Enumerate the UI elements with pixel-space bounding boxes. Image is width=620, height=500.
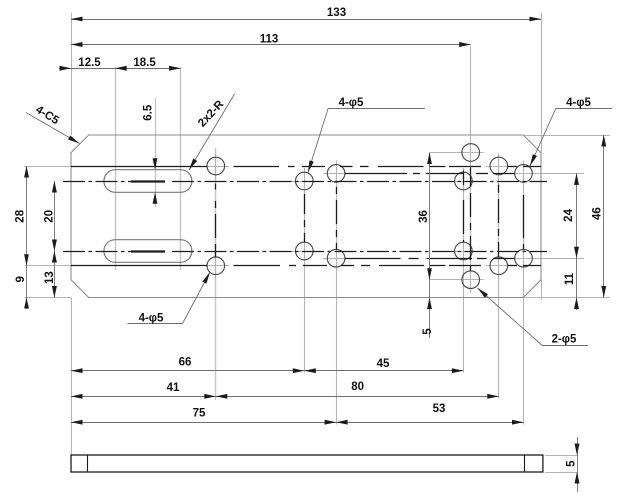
svg-text:133: 133 [327, 7, 346, 19]
svg-text:75: 75 [193, 408, 206, 420]
svg-text:12.5: 12.5 [78, 57, 101, 69]
svg-text:4-φ5: 4-φ5 [339, 97, 364, 109]
svg-text:2-φ5: 2-φ5 [552, 334, 577, 346]
svg-text:80: 80 [351, 381, 364, 393]
svg-text:24: 24 [563, 208, 575, 221]
svg-text:5: 5 [422, 328, 434, 335]
svg-text:6.5: 6.5 [143, 104, 155, 121]
svg-text:11: 11 [564, 272, 576, 285]
svg-text:9: 9 [15, 276, 27, 282]
svg-text:41: 41 [167, 382, 180, 394]
svg-text:5: 5 [566, 460, 578, 467]
svg-text:46: 46 [592, 207, 604, 220]
svg-text:18.5: 18.5 [133, 57, 156, 69]
svg-text:28: 28 [15, 209, 27, 222]
svg-text:4-φ5: 4-φ5 [566, 97, 591, 109]
svg-text:45: 45 [377, 358, 390, 370]
svg-text:36: 36 [418, 210, 430, 223]
svg-text:20: 20 [44, 210, 56, 223]
svg-text:13: 13 [44, 271, 56, 284]
svg-text:66: 66 [179, 357, 192, 369]
svg-text:113: 113 [260, 34, 279, 46]
svg-text:4-φ5: 4-φ5 [139, 313, 164, 325]
svg-text:53: 53 [433, 403, 446, 415]
